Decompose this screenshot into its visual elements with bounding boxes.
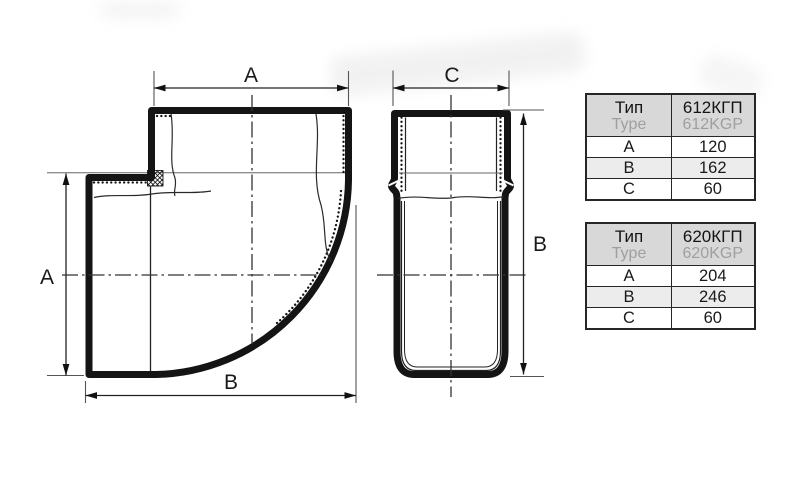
table-row: C 60 bbox=[587, 179, 754, 199]
front-view: A A B bbox=[40, 64, 356, 403]
wall-hatch-section bbox=[148, 171, 164, 187]
header-model-cell: 612КГП 612KGP bbox=[672, 95, 754, 136]
param-cell: B bbox=[587, 158, 672, 178]
value-cell: 246 bbox=[672, 287, 754, 307]
param-cell: C bbox=[587, 179, 672, 199]
header-type-cell: Тип Type bbox=[587, 95, 672, 136]
value-cell: 204 bbox=[672, 266, 754, 286]
spec-table-612: Тип Type 612КГП 612KGP A 120 B 162 C 60 bbox=[585, 93, 756, 201]
dim-label-b-bottom: B bbox=[224, 371, 238, 394]
table-row: B 246 bbox=[587, 287, 754, 308]
param-cell: B bbox=[587, 287, 672, 307]
model-label-en: 612KGP bbox=[672, 117, 754, 133]
model-label-ru: 620КГП bbox=[672, 227, 754, 246]
value-cell: 60 bbox=[672, 308, 754, 328]
model-label-en: 620KGP bbox=[672, 246, 754, 262]
value-cell: 60 bbox=[672, 179, 754, 199]
dim-label-b-right: B bbox=[533, 233, 547, 256]
param-cell: C bbox=[587, 308, 672, 328]
param-cell: A bbox=[587, 266, 672, 286]
table-row: B 162 bbox=[587, 158, 754, 179]
value-cell: 120 bbox=[672, 137, 754, 157]
type-label-ru: Тип bbox=[587, 227, 671, 246]
technical-drawing-page: A A B bbox=[0, 0, 800, 500]
table-row: A 204 bbox=[587, 266, 754, 287]
type-label-ru: Тип bbox=[587, 98, 671, 117]
dim-label-a-top: A bbox=[244, 64, 258, 87]
table-row: C 60 bbox=[587, 308, 754, 328]
type-label-en: Type bbox=[587, 117, 671, 133]
type-label-en: Type bbox=[587, 246, 671, 262]
param-cell: A bbox=[587, 137, 672, 157]
centerlines bbox=[62, 95, 321, 344]
table-row: A 120 bbox=[587, 137, 754, 158]
model-label-ru: 612КГП bbox=[672, 98, 754, 117]
dimension-a-top: A bbox=[154, 64, 349, 106]
table-header: Тип Type 620КГП 620KGP bbox=[587, 224, 754, 266]
header-type-cell: Тип Type bbox=[587, 224, 672, 265]
elbow-body-outline bbox=[89, 111, 349, 375]
side-view: C B bbox=[377, 64, 547, 397]
insulation-stipple bbox=[94, 116, 344, 323]
header-model-cell: 620КГП 620KGP bbox=[672, 224, 754, 265]
dim-label-c-top: C bbox=[444, 64, 459, 87]
table-header: Тип Type 612КГП 612KGP bbox=[587, 95, 754, 137]
value-cell: 162 bbox=[672, 158, 754, 178]
spec-table-620: Тип Type 620КГП 620KGP A 204 B 246 C 60 bbox=[585, 222, 756, 330]
dim-label-a-left: A bbox=[40, 266, 54, 289]
break-lines bbox=[94, 114, 331, 262]
